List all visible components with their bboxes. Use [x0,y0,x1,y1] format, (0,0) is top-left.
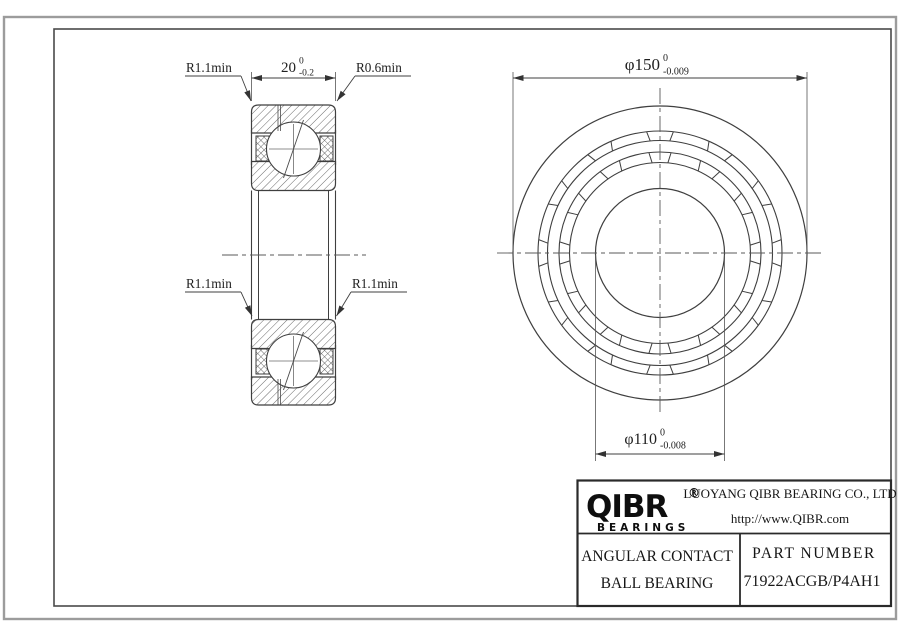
company-website: http://www.QIBR.com [731,511,849,526]
cage-pocket-line [734,305,741,313]
cage-pocket-line [600,327,608,334]
cage-pocket-line [742,212,753,214]
cage-pocket-line [588,345,596,351]
callout-radius-top-right: R0.6min [337,60,411,101]
cage-pocket-line [698,161,700,172]
cage-pocket-line [611,141,613,151]
cage-pocket-line [670,365,674,374]
cage-pocket-line [712,172,720,179]
cage-pocket-line [734,193,741,201]
cage-pocket-line [579,193,586,201]
cage-pocket-line [708,355,710,365]
dim-width-tol-bot: -0.2 [299,69,314,79]
cage-pocket-line [600,172,608,179]
cage-pocket-line [649,153,652,163]
part-number-label: PART NUMBER [752,545,876,562]
cage-pocket-line [560,261,570,264]
cage-pocket-line [712,327,720,334]
radius-label: R0.6min [356,60,402,75]
leader-line [241,292,252,316]
cage-pocket-line [649,343,652,353]
cage-pocket-line [568,212,579,214]
cage-pocket-line [548,301,558,303]
cage-pocket-line [579,305,586,313]
cage-pocket-line [750,261,760,264]
cage-pocket-line [725,345,733,351]
cage-pocket-line [725,155,733,161]
logo-text: QIBR [586,489,669,525]
callout-radius-mid-right: R1.1min [337,276,408,316]
dim-width-value: 20 [281,60,296,76]
dim-width: 20 0 -0.2 [252,57,336,102]
bearing-drawing: 20 0 -0.2 R1.1min R0.6min R1.1min R1.1mi… [0,0,900,636]
logo-subtitle: BEARINGS [597,522,689,534]
cage-pocket-line [752,318,758,326]
cage-pocket-line [742,291,753,293]
section-view: 20 0 -0.2 R1.1min R0.6min R1.1min R1.1mi… [185,57,411,406]
cage-pocket-line [539,263,548,267]
product-type-line2: BALL BEARING [601,575,714,592]
cage-pocket-line [647,365,651,374]
company-name: LUOYANG QIBR BEARING CO., LTD [683,486,896,501]
product-type-line1: ANGULAR CONTACT [581,548,733,565]
dim-od-tol-top: 0 [663,53,668,64]
cage-pocket-line [772,240,781,244]
callout-radius-mid-left: R1.1min [185,276,252,316]
cage-pocket-line [562,318,568,326]
cage-pocket-line [562,181,568,189]
radius-label: R1.1min [352,276,398,291]
dim-od-value: φ150 [625,55,660,74]
cage-pocket-line [619,335,621,346]
dim-od-tol-bot: -0.009 [663,67,689,78]
leader-line [241,76,251,101]
cage-pocket-line [568,291,579,293]
leader-line [337,76,355,101]
leader-line [337,292,352,316]
cage-pocket-line [708,141,710,151]
cage-pocket-line [698,335,700,346]
cage-pocket-line [670,132,674,141]
cage-pocket-line [752,181,758,189]
radius-label: R1.1min [186,276,232,291]
title-block: QIBR ® BEARINGS LUOYANG QIBR BEARING CO.… [578,481,897,607]
dim-width-tol-top: 0 [299,57,304,67]
cage-pocket-line [619,161,621,172]
dim-bore-tol-top: 0 [660,428,665,439]
cage-pocket-line [647,132,651,141]
part-number-value: 71922ACGB/P4AH1 [744,573,881,590]
cage-pocket-line [762,204,772,206]
radius-label: R1.1min [186,60,232,75]
cage-pocket-line [668,343,671,353]
cage-pocket-line [762,301,772,303]
front-view: φ150 0 -0.009 φ110 0 -0.008 [497,53,823,461]
cage-pocket-line [548,204,558,206]
dim-bore-tol-bot: -0.008 [660,441,686,452]
cage-pocket-line [772,263,781,267]
cage-pocket-line [539,240,548,244]
cage-section-upper-right [320,136,333,161]
drawing-sheet: 20 0 -0.2 R1.1min R0.6min R1.1min R1.1mi… [0,0,900,636]
dim-bore-value: φ110 [624,431,657,448]
cage-section-lower-right [320,349,333,374]
cage-pocket-line [611,355,613,365]
callout-radius-top-left: R1.1min [185,60,251,101]
cage-pocket-line [560,242,570,245]
cage-pocket-line [588,155,596,161]
cage-pocket-line [750,242,760,245]
cage-pocket-line [668,153,671,163]
